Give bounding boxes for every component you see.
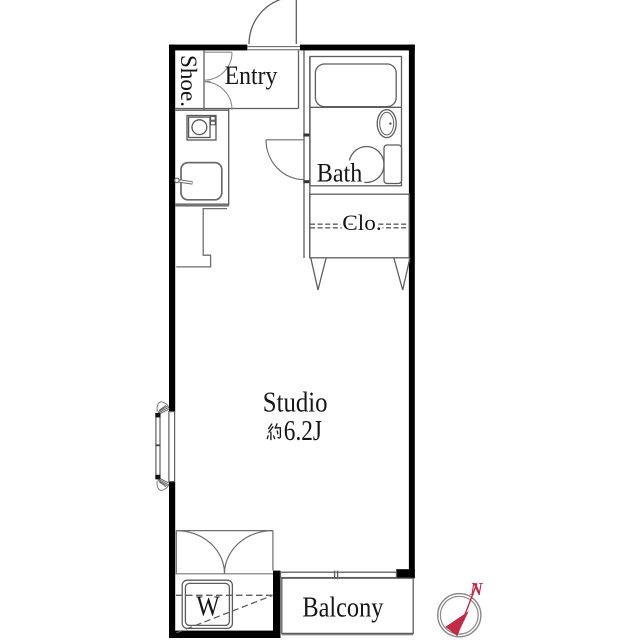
svg-text:W: W: [196, 591, 220, 623]
svg-text:Entry: Entry: [225, 61, 278, 90]
svg-text:Balcony: Balcony: [302, 592, 383, 624]
svg-text:Clo.: Clo.: [342, 210, 381, 235]
svg-text:6.2J: 6.2J: [284, 416, 322, 447]
svg-text:Bath: Bath: [317, 158, 363, 187]
svg-text:Studio: Studio: [263, 388, 328, 419]
svg-text:N: N: [469, 579, 484, 599]
svg-text:Shoe.: Shoe.: [175, 55, 201, 107]
